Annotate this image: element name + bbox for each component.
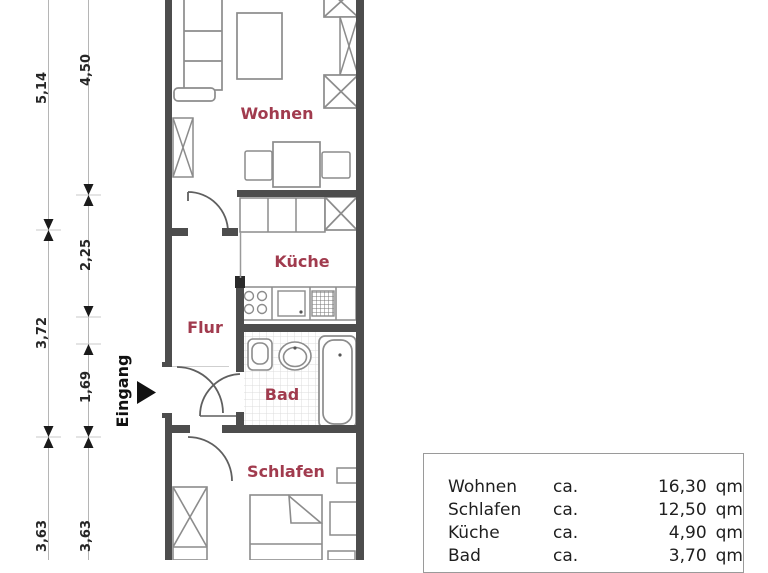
chair-right	[322, 152, 350, 178]
area-unit: qm	[716, 476, 743, 499]
room-name: Schlafen	[448, 499, 553, 522]
area-value: 4,90	[613, 522, 706, 545]
cabinet-left	[173, 118, 193, 177]
approx-label: ca.	[553, 522, 613, 545]
door-bedroom	[188, 437, 232, 481]
dimension-label-inner-lower-middle: 1,69	[79, 371, 94, 403]
area-value: 3,70	[613, 545, 706, 568]
approx-label: ca.	[553, 476, 613, 499]
bed	[250, 495, 322, 560]
room-label-flur: Flur	[187, 318, 223, 337]
room-label-schlafen: Schlafen	[247, 462, 325, 481]
room-label-kueche: Küche	[274, 252, 329, 271]
washbasin	[279, 342, 311, 370]
dimension-label-inner-top: 4,50	[79, 54, 94, 86]
room-name: Bad	[448, 545, 553, 568]
area-value: 12,50	[613, 499, 706, 522]
area-unit: qm	[716, 499, 743, 522]
coffee-table	[237, 13, 282, 79]
room-label-bad: Bad	[265, 385, 299, 404]
dining-table	[273, 142, 320, 187]
wardrobe-top-right	[324, 0, 358, 17]
area-unit: qm	[716, 545, 743, 568]
nightstand-upper	[337, 468, 358, 483]
nightstand-right	[330, 502, 357, 535]
approx-label: ca.	[553, 545, 613, 568]
approx-label: ca.	[553, 499, 613, 522]
dimension-label-outer-top: 5,14	[35, 72, 50, 104]
sofa	[174, 0, 222, 101]
table-row: Bad ca. 3,70 qm	[424, 545, 743, 568]
area-value: 16,30	[613, 476, 706, 499]
bathtub	[319, 336, 356, 428]
entrance-arrow-icon	[137, 381, 156, 404]
kitchen-upper-counter	[240, 198, 325, 232]
toilet	[248, 339, 272, 370]
wardrobe-bedroom	[173, 487, 207, 560]
oven	[278, 291, 305, 316]
area-table: Wohnen ca. 16,30 qm Schlafen ca. 12,50 q…	[423, 453, 744, 573]
wardrobe-right	[324, 75, 358, 108]
room-name: Wohnen	[448, 476, 553, 499]
table-row: Schlafen ca. 12,50 qm	[424, 499, 743, 522]
dimension-arrow-markers	[44, 184, 94, 448]
kitchen-sink	[312, 291, 334, 316]
dimension-label-inner-bottom: 3,63	[79, 520, 94, 552]
door-living-room	[188, 192, 228, 232]
kitchen-cabinet-x	[325, 197, 357, 230]
entrance-label: Eingang	[113, 355, 132, 428]
dimension-label-outer-middle: 3,72	[35, 317, 50, 349]
area-unit: qm	[716, 522, 743, 545]
room-label-wohnen: Wohnen	[240, 104, 313, 123]
room-name: Küche	[448, 522, 553, 545]
dimension-label-outer-bottom: 3,63	[35, 520, 50, 552]
nightstand-lower	[328, 551, 355, 560]
chair-left	[245, 151, 272, 180]
dimension-label-inner-upper-middle: 2,25	[79, 239, 94, 271]
table-row: Wohnen ca. 16,30 qm	[424, 476, 743, 499]
table-row: Küche ca. 4,90 qm	[424, 522, 743, 545]
cabinet-tall-right	[340, 17, 358, 75]
